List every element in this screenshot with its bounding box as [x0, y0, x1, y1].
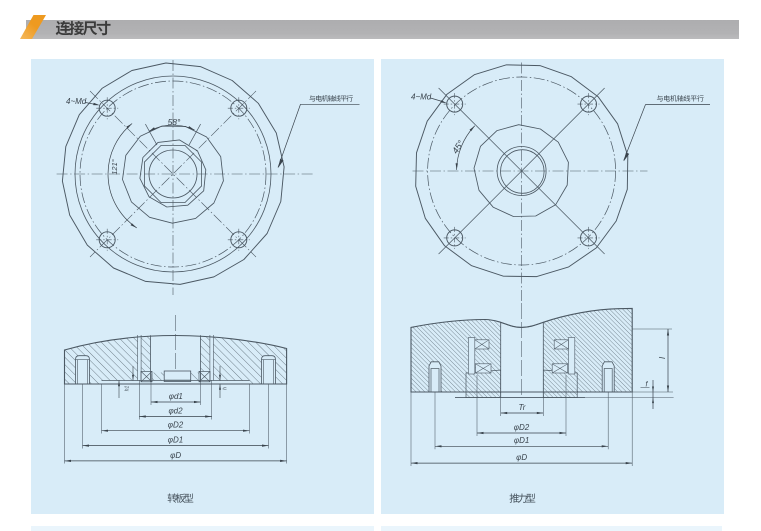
- svg-text:φD1: φD1: [514, 436, 529, 445]
- svg-text:φd1: φd1: [169, 392, 183, 401]
- svg-text:φD2: φD2: [514, 423, 530, 432]
- svg-text:h1: h1: [125, 386, 131, 392]
- svg-text:4~Md: 4~Md: [411, 93, 432, 102]
- svg-text:φD: φD: [170, 451, 181, 460]
- svg-text:φD1: φD1: [168, 436, 183, 445]
- svg-text:4~Md: 4~Md: [66, 97, 87, 106]
- svg-text:Tr: Tr: [519, 403, 526, 412]
- svg-text:φd2: φd2: [168, 406, 183, 415]
- svg-text:121°: 121°: [110, 159, 119, 175]
- svg-text:h: h: [223, 387, 229, 390]
- svg-text:φD2: φD2: [168, 421, 184, 430]
- svg-text:φD: φD: [516, 453, 527, 462]
- svg-text:l: l: [658, 357, 667, 359]
- svg-text:58°: 58°: [168, 117, 181, 127]
